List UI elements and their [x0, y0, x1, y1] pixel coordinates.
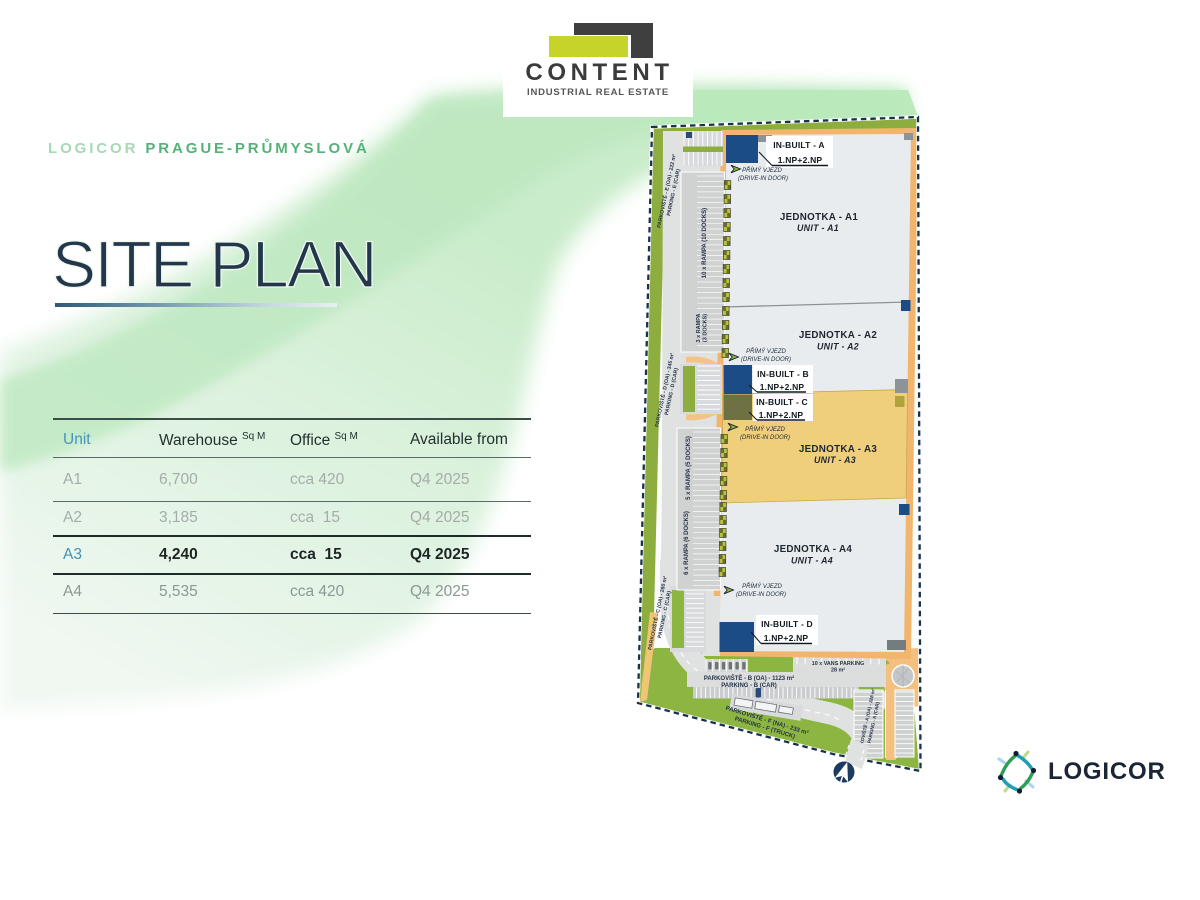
svg-text:JEDNOTKA - A3: JEDNOTKA - A3 — [799, 444, 878, 455]
svg-text:(DRIVE-IN DOOR): (DRIVE-IN DOOR) — [736, 592, 786, 598]
svg-text:IN-BUILT - B: IN-BUILT - B — [757, 369, 809, 379]
svg-text:1.NP+2.NP: 1.NP+2.NP — [778, 155, 823, 165]
svg-text:JEDNOTKA - A1: JEDNOTKA - A1 — [780, 212, 859, 223]
svg-text:5 x RAMPA (5 DOCKS): 5 x RAMPA (5 DOCKS) — [686, 436, 692, 500]
svg-text:1.NP+2.NP: 1.NP+2.NP — [759, 410, 804, 420]
svg-text:10 x RAMPA (10 DOCKS): 10 x RAMPA (10 DOCKS) — [702, 208, 708, 278]
svg-text:PARKING - B (CAR): PARKING - B (CAR) — [721, 683, 777, 689]
svg-text:IN-BUILT - A: IN-BUILT - A — [773, 140, 825, 150]
svg-text:1.NP+2.NP: 1.NP+2.NP — [760, 382, 805, 392]
svg-text:PARKOVIŠTĚ - B (OA) - 1123 m²: PARKOVIŠTĚ - B (OA) - 1123 m² — [704, 674, 794, 682]
svg-text:PŘÍMÝ VJEZD: PŘÍMÝ VJEZD — [745, 425, 785, 433]
svg-text:(DRIVE-IN DOOR): (DRIVE-IN DOOR) — [741, 357, 791, 363]
svg-text:(DRIVE-IN DOOR): (DRIVE-IN DOOR) — [738, 176, 788, 182]
svg-text:(DRIVE-IN DOOR): (DRIVE-IN DOOR) — [740, 435, 790, 441]
svg-text:1.NP+2.NP: 1.NP+2.NP — [764, 633, 809, 643]
svg-text:6 x RAMPA (6 DOCKS): 6 x RAMPA (6 DOCKS) — [684, 511, 690, 575]
svg-text:UNIT - A2: UNIT - A2 — [817, 342, 859, 352]
svg-text:3 x RAMPA: 3 x RAMPA — [696, 314, 702, 343]
svg-text:JEDNOTKA - A4: JEDNOTKA - A4 — [774, 544, 853, 555]
svg-text:PŘÍMÝ VJEZD: PŘÍMÝ VJEZD — [746, 347, 786, 355]
svg-text:10 x VANS PARKING: 10 x VANS PARKING — [812, 661, 865, 667]
svg-text:IN-BUILT - C: IN-BUILT - C — [756, 397, 808, 407]
svg-text:JEDNOTKA - A2: JEDNOTKA - A2 — [799, 330, 878, 341]
svg-text:(3 DOCKS): (3 DOCKS) — [703, 314, 709, 342]
svg-text:IN-BUILT - D: IN-BUILT - D — [761, 619, 813, 629]
svg-text:PŘÍMÝ VJEZD: PŘÍMÝ VJEZD — [742, 582, 782, 590]
svg-text:UNIT - A4: UNIT - A4 — [791, 556, 833, 566]
svg-text:PŘÍMÝ VJEZD: PŘÍMÝ VJEZD — [742, 166, 782, 174]
svg-text:UNIT - A3: UNIT - A3 — [814, 455, 856, 465]
svg-text:UNIT - A1: UNIT - A1 — [797, 223, 839, 233]
